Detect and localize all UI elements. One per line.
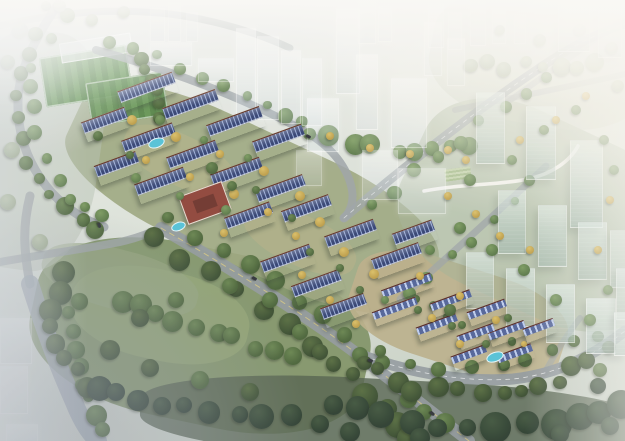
aerial-rendering-scene [0,0,625,441]
car [306,134,312,139]
vehicles-layer [0,0,625,441]
car [252,276,258,281]
car [97,222,101,228]
car [368,358,374,362]
car [430,411,435,416]
